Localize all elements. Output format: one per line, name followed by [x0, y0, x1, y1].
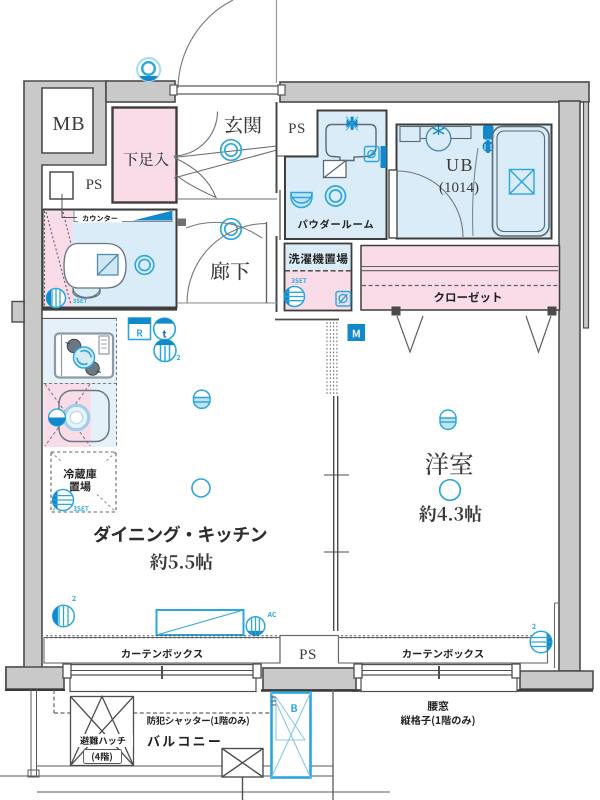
- svg-text:(1014): (1014): [439, 180, 479, 196]
- svg-text:PS: PS: [86, 177, 103, 193]
- svg-text:PS: PS: [288, 121, 306, 137]
- svg-text:UB: UB: [446, 155, 474, 175]
- svg-text:PS: PS: [299, 647, 317, 663]
- svg-text:MB: MB: [52, 113, 85, 135]
